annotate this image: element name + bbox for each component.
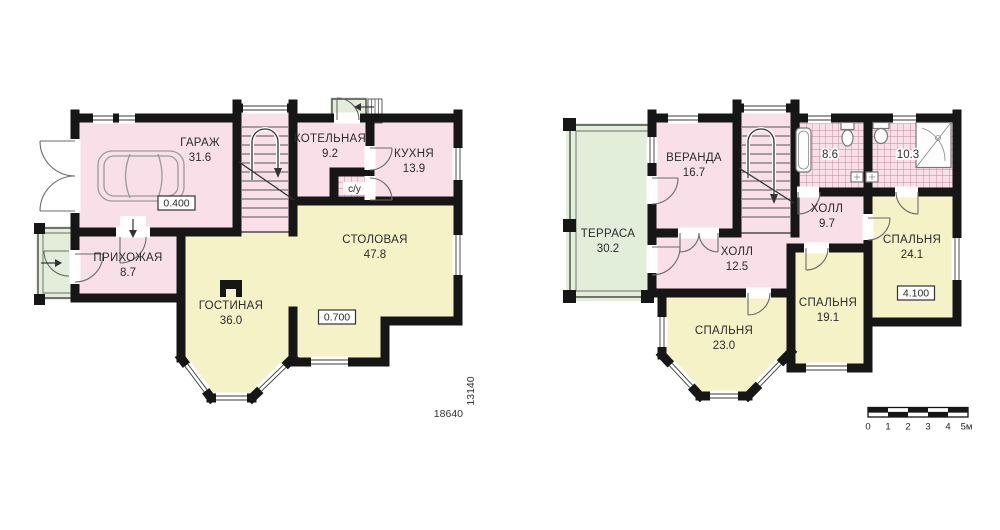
level-mark-dining: 0.700 xyxy=(324,312,350,324)
room-area-living: 36.0 xyxy=(220,315,242,327)
room-label-dining: СТОЛОВАЯ xyxy=(342,234,407,246)
room-label-living: ГОСТИНАЯ xyxy=(199,300,263,312)
window-veranda-left xyxy=(647,137,658,163)
scale-label-3: 3 xyxy=(925,422,930,433)
scale-label-1: 1 xyxy=(885,422,890,433)
floor-plan-sheet: ГАРАЖ 31.6 0.400 КОТЕЛЬНАЯ 9.2 КУХНЯ 13.… xyxy=(0,0,1000,530)
window-dining-right xyxy=(453,235,464,275)
room-label-boiler: КОТЕЛЬНАЯ xyxy=(294,133,366,145)
window-bath-big-top xyxy=(893,113,916,124)
room-area-dining: 47.8 xyxy=(364,249,386,261)
window-bedroom-left-west xyxy=(657,317,668,347)
floor2-plan: ТЕРРАСА 30.2 ВЕРАНДА 16.7 8.6 10.3 ХОЛЛ … xyxy=(563,103,963,402)
window-bay2-bottom xyxy=(710,391,738,402)
window-bath-small-top xyxy=(808,113,831,124)
room-area-boiler: 9.2 xyxy=(322,148,338,160)
window-kitchen-right xyxy=(453,148,464,180)
shower-icon xyxy=(916,123,951,168)
room-label-hall-upper: ХОЛЛ xyxy=(811,203,843,215)
room-area-hall-upper: 9.7 xyxy=(819,218,835,230)
level-mark-bedroom: 4.100 xyxy=(903,288,929,300)
window-veranda-top xyxy=(668,113,698,124)
room-terrace xyxy=(566,123,652,301)
room-area-hall-lower: 12.5 xyxy=(726,261,748,273)
room-label-kitchen: КУХНЯ xyxy=(394,148,434,160)
room-area-hallway: 8.7 xyxy=(120,267,136,279)
room-area-bedroom-right: 24.1 xyxy=(901,249,923,261)
dimension-width: 18640 xyxy=(434,408,463,420)
room-hallway xyxy=(75,232,181,298)
room-label-hallway: ПРИХОЖАЯ xyxy=(93,252,162,264)
scale-label-5: 5м xyxy=(961,422,973,433)
scale-label-2: 2 xyxy=(905,422,910,433)
scale-bar: 0 1 2 3 4 5м xyxy=(865,408,972,433)
bathtub-icon xyxy=(796,128,811,172)
scale-label-4: 4 xyxy=(945,422,950,433)
room-label-bedroom-right: СПАЛЬНЯ xyxy=(883,234,941,246)
room-area-kitchen: 13.9 xyxy=(403,163,425,175)
floor1-room-fills xyxy=(36,97,458,398)
toilet-icon xyxy=(841,123,854,147)
room-label-veranda: ВЕРАНДА xyxy=(666,152,722,164)
sink-icon xyxy=(873,123,889,144)
window-garage-top-2 xyxy=(119,113,135,124)
floor1-dimensions: 18640 13140 xyxy=(434,376,477,420)
room-area-garage: 31.6 xyxy=(189,152,211,164)
scale-label-0: 0 xyxy=(865,422,870,433)
room-area-veranda: 16.7 xyxy=(683,167,705,179)
room-label-bedroom-mid: СПАЛЬНЯ xyxy=(799,297,857,309)
room-area-bath-small: 8.6 xyxy=(822,149,838,161)
window-garage-top-1 xyxy=(93,113,113,124)
window-bedroom-mid-bottom xyxy=(806,363,847,374)
room-label-terrace: ТЕРРАСА xyxy=(581,228,636,240)
room-label-garage: ГАРАЖ xyxy=(180,137,220,149)
room-label-hall-lower: ХОЛЛ xyxy=(721,246,753,258)
room-label-bedroom-left: СПАЛЬНЯ xyxy=(695,325,753,337)
dimension-height: 13140 xyxy=(465,376,477,405)
window-stair1-top xyxy=(243,103,287,114)
floor1-plan: ГАРАЖ 31.6 0.400 КОТЕЛЬНАЯ 9.2 КУХНЯ 13.… xyxy=(34,97,477,420)
floor-plan-drawing: ГАРАЖ 31.6 0.400 КОТЕЛЬНАЯ 9.2 КУХНЯ 13.… xyxy=(0,0,1000,530)
room-area-terrace: 30.2 xyxy=(597,243,619,255)
room-garage xyxy=(75,118,237,232)
window-bay-bottom xyxy=(216,393,247,404)
window-dining-bottom xyxy=(311,357,348,368)
window-stair2-top xyxy=(744,103,786,114)
room-area-bedroom-mid: 19.1 xyxy=(817,312,839,324)
level-mark-garage: 0.400 xyxy=(163,198,189,210)
room-area-bath-big: 10.3 xyxy=(897,149,919,161)
window-bedroom-right-east xyxy=(952,238,963,280)
room-area-bedroom-left: 23.0 xyxy=(713,340,735,352)
room-label-wc: с/у xyxy=(348,184,361,195)
